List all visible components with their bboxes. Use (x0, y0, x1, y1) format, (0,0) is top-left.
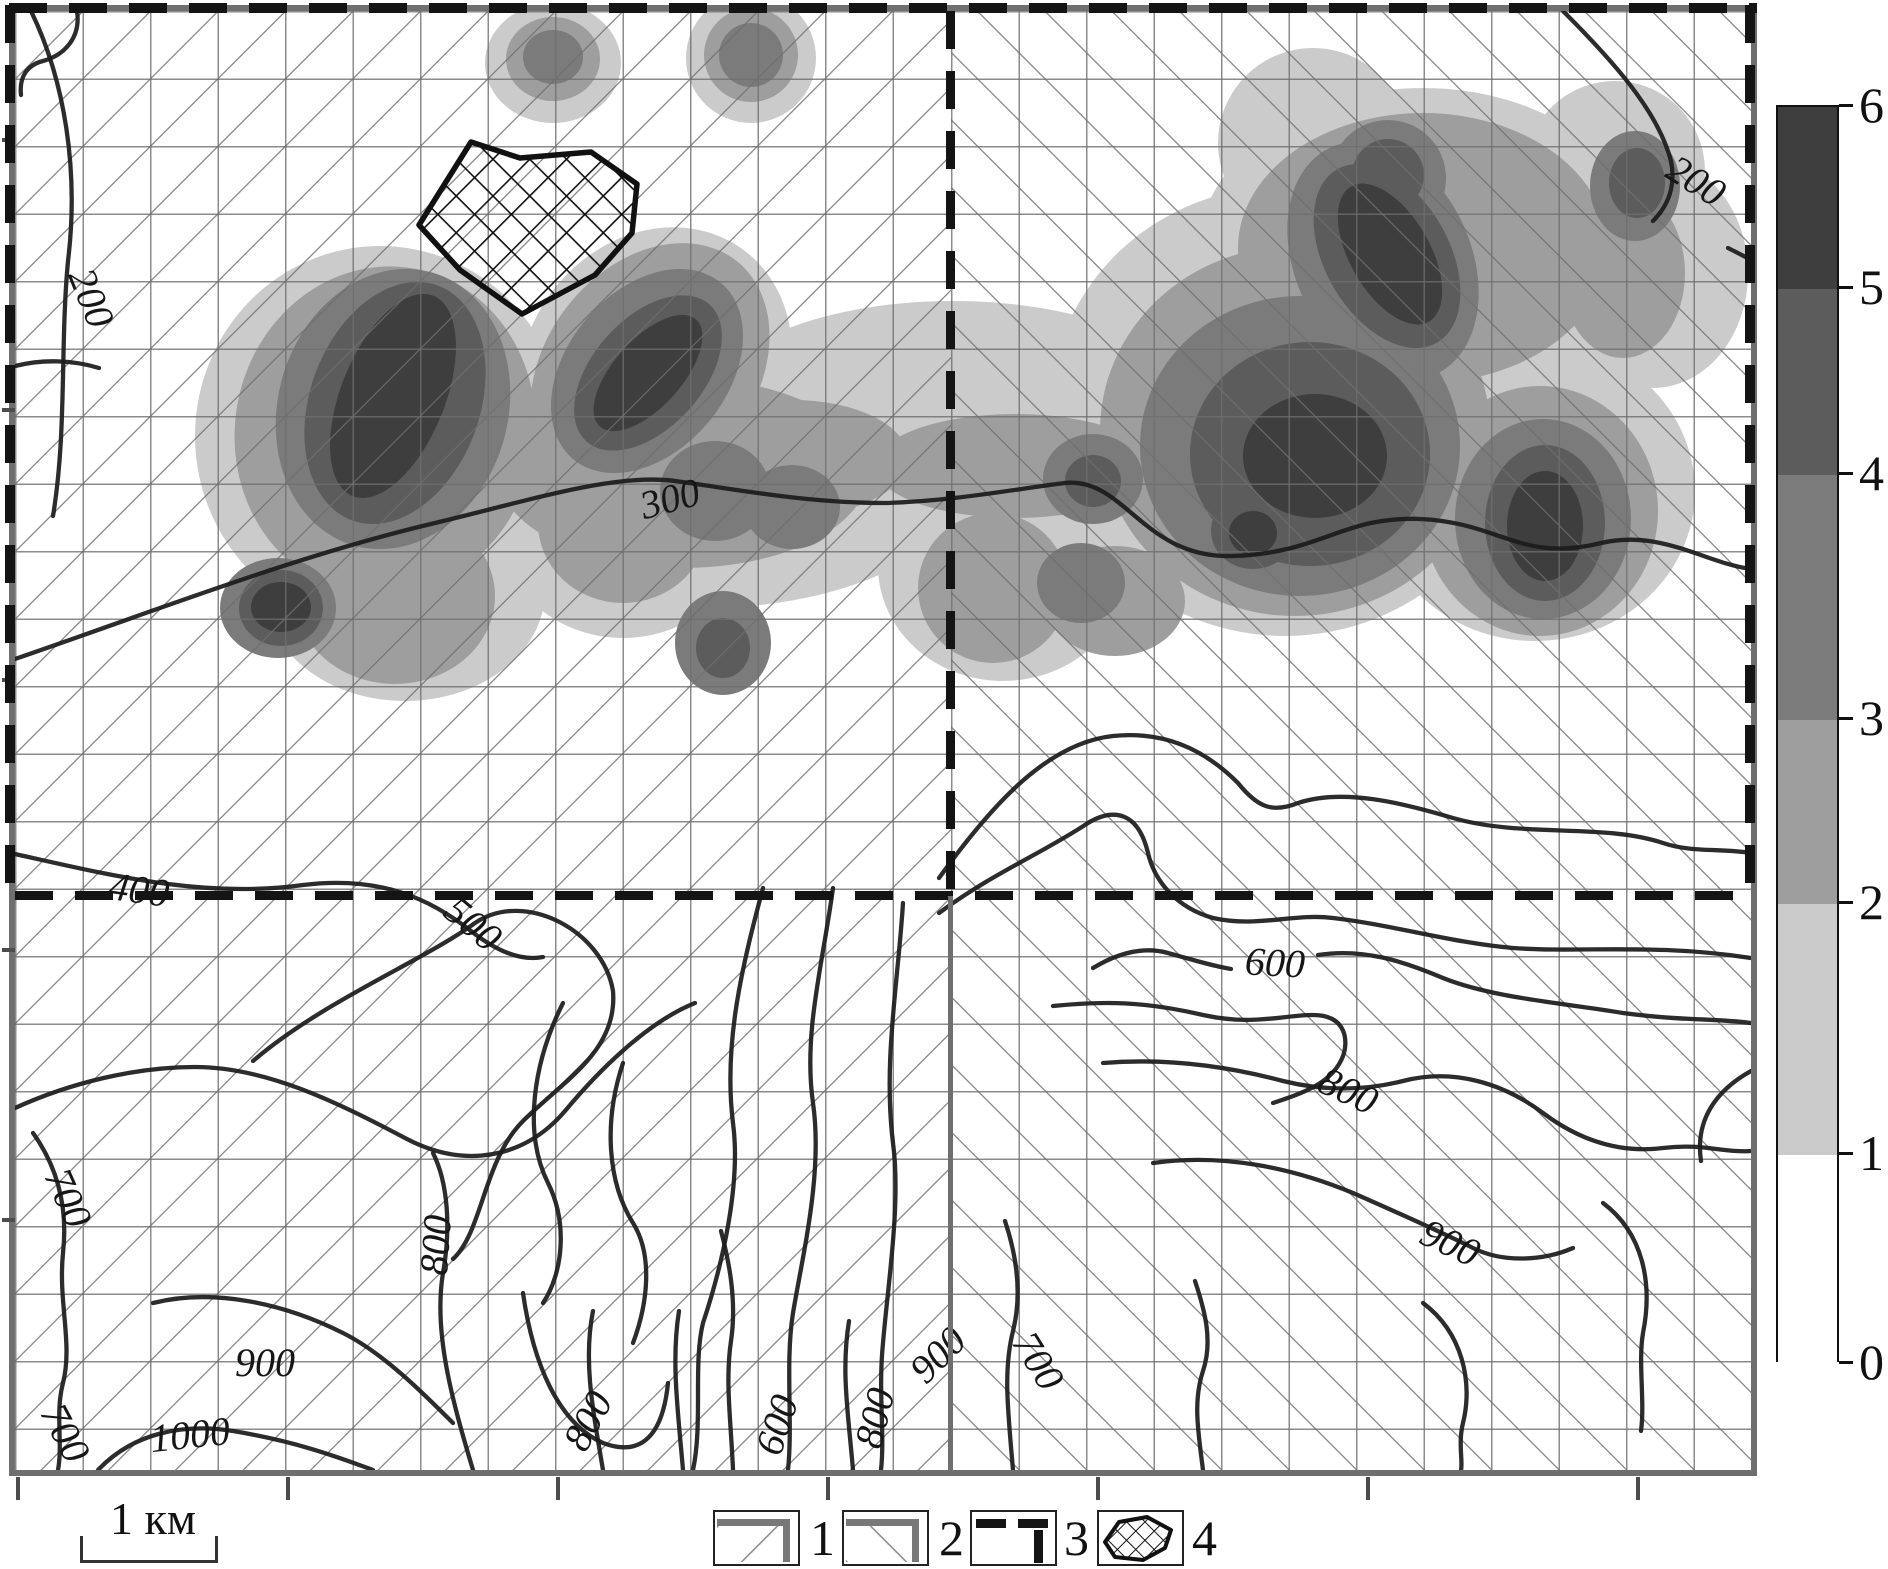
colorbar-tick (1839, 717, 1853, 720)
left-axis-tick (2, 948, 15, 952)
gray-boundary-line (912, 1519, 919, 1562)
contour-line (939, 735, 1751, 878)
legend-symbol-hatch-forward (713, 1510, 800, 1566)
contour-line (721, 1231, 733, 1470)
colorbar-tick (1839, 1152, 1853, 1155)
contour-line (788, 888, 833, 1470)
bottom-axis-tick (556, 1477, 560, 1500)
colorbar-label-6: 6 (1859, 80, 1884, 130)
bottom-axis-tick (1636, 1477, 1640, 1500)
contour-label-600-5: 600 (1244, 941, 1306, 984)
colorbar-segment-0-1 (1778, 1155, 1837, 1364)
contour-line (15, 1003, 695, 1156)
map-right-dashed-border (1745, 5, 1755, 897)
crosshatched-polygon (419, 142, 637, 314)
contour-line (1103, 1061, 1751, 1151)
bottom-axis-tick (1096, 1477, 1100, 1500)
map-top-dashed-border (9, 3, 1757, 13)
colorbar-tick (1839, 104, 1853, 107)
contour-line (153, 1297, 453, 1423)
gray-boundary-line (717, 1519, 790, 1526)
contour-line (611, 1063, 647, 1343)
contour-label-1000-11: 1000 (148, 1411, 232, 1459)
legend-item-number-4: 4 (1192, 1510, 1217, 1566)
colorbar-label-4: 4 (1859, 448, 1884, 498)
horizontal-dashed-divider (15, 891, 1751, 900)
legend-item-number-1: 1 (810, 1510, 835, 1566)
solid-bar-sample (1034, 1530, 1043, 1563)
figure-canvas: 2002003004005006008009007008009001000700… (0, 0, 1888, 1569)
contour-line (534, 1003, 563, 1303)
contour-line (1563, 11, 1672, 221)
contour-line (15, 361, 99, 368)
contour-line (253, 911, 613, 1259)
contour-lines-layer (15, 11, 1751, 1470)
gray-boundary-line (783, 1519, 790, 1562)
dashed-line-sample (976, 1519, 1006, 1528)
contour-label-800-9: 800 (414, 1214, 458, 1277)
colorbar-tick (1839, 472, 1853, 475)
map-left-dashed-border (5, 5, 15, 897)
colorbar-segment-2-3 (1778, 720, 1837, 904)
colorbar-segment-4-5 (1778, 289, 1837, 475)
contour-line (1195, 1281, 1208, 1470)
left-axis-tick (2, 1218, 15, 1222)
colorbar-label-2: 2 (1859, 877, 1884, 927)
colorbar-label-3: 3 (1859, 693, 1884, 743)
contour-line (31, 11, 72, 516)
hatch-sample (717, 1526, 783, 1562)
vertical-solid-divider (948, 896, 953, 1470)
contour-line (1053, 1003, 1345, 1103)
contour-line (1093, 950, 1231, 969)
contour-line (1318, 953, 1751, 1023)
colorbar-segment-1-2 (1778, 904, 1837, 1155)
hatch-sample (846, 1526, 912, 1562)
contour-line (675, 1311, 683, 1470)
contour-label-900-10: 900 (235, 1343, 295, 1383)
bottom-axis-tick (826, 1477, 830, 1500)
bottom-axis-tick (1366, 1477, 1370, 1500)
contour-map: 2002003004005006008009007008009001000700… (9, 5, 1757, 1476)
crosshatch-polygon-sample (1099, 1512, 1179, 1564)
colorbar-tick (1839, 1361, 1853, 1364)
bottom-axis-tick (16, 1477, 20, 1500)
legend-item-number-2: 2 (939, 1510, 964, 1566)
contour-label-400-3: 400 (107, 866, 172, 914)
colorbar-tick (1839, 901, 1853, 904)
colorbar-tick (1839, 286, 1853, 289)
contour-line (98, 1428, 373, 1470)
contour-line (1153, 1160, 1573, 1259)
contour-line (15, 480, 1751, 659)
scale-bar-label: 1 км (88, 1496, 218, 1542)
dashed-line-sample (1018, 1519, 1048, 1528)
colorbar-segment-3-4 (1778, 475, 1837, 720)
legend-symbol-hatch-back (842, 1510, 929, 1566)
vertical-dashed-divider (946, 11, 955, 896)
colorbar-label-0: 0 (1859, 1337, 1884, 1387)
legend-item-number-3: 3 (1064, 1510, 1089, 1566)
colorbar-label-1: 1 (1859, 1128, 1884, 1178)
contour-line (845, 1321, 853, 1470)
colorbar-label-5: 5 (1859, 262, 1884, 312)
contour-line (1423, 1303, 1467, 1470)
colorbar-scale (1776, 105, 1839, 1362)
legend-symbol-crosshatch-polygon (1097, 1510, 1184, 1566)
contour-line (881, 903, 903, 1470)
colorbar-segment-5-6 (1778, 107, 1837, 289)
legend-symbol-boundary-lines (970, 1510, 1057, 1566)
bottom-axis-tick (286, 1477, 290, 1500)
contour-line (1603, 1203, 1647, 1431)
gray-boundary-line (846, 1519, 919, 1526)
